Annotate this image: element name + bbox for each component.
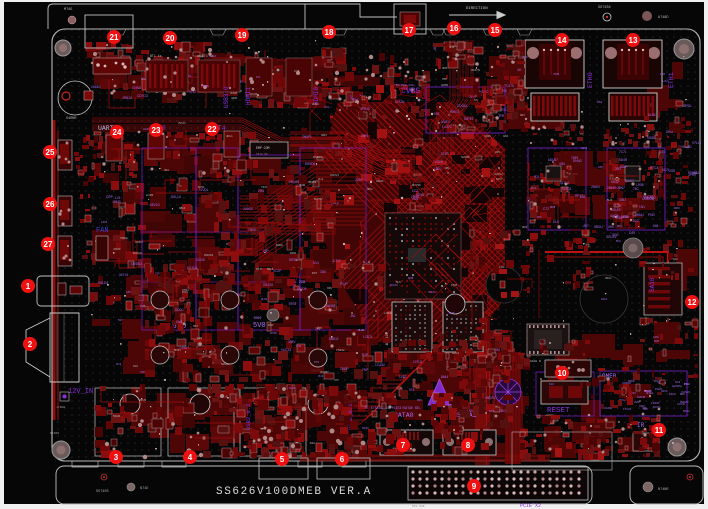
svg-text:R2U5: R2U5 — [139, 398, 147, 402]
svg-text:9742: 9742 — [189, 90, 196, 94]
svg-text:004: 004 — [608, 225, 614, 229]
svg-text:L7U: L7U — [615, 204, 622, 208]
svg-text:DRR6: DRR6 — [289, 258, 298, 262]
svg-text:L7U: L7U — [499, 265, 504, 269]
svg-text:R71: R71 — [531, 186, 537, 190]
svg-text:DU0C: DU0C — [175, 308, 184, 312]
svg-text:13: 13 — [629, 36, 638, 45]
svg-text:CDG6L: CDG6L — [457, 104, 468, 108]
svg-text:0978: 0978 — [289, 302, 296, 306]
svg-text:98L6: 98L6 — [179, 206, 186, 210]
svg-text:UCL: UCL — [324, 105, 330, 109]
svg-text:73N3: 73N3 — [248, 228, 256, 232]
svg-text:S5740S: S5740S — [96, 490, 109, 494]
svg-text:16x8 Gb: 16x8 Gb — [256, 152, 268, 156]
svg-text:4LN92: 4LN92 — [326, 304, 336, 308]
svg-text:958L: 958L — [203, 84, 210, 88]
svg-text:J864J: J864J — [635, 213, 644, 217]
svg-text:DL5: DL5 — [553, 220, 559, 224]
svg-text:7459: 7459 — [571, 156, 578, 160]
svg-text:BT1 4x: BT1 4x — [150, 54, 162, 58]
svg-text:UJ5: UJ5 — [659, 150, 665, 154]
svg-text:10: 10 — [558, 369, 567, 378]
svg-text:LJ3C5: LJ3C5 — [363, 335, 372, 339]
svg-text:685D2: 685D2 — [329, 337, 339, 341]
svg-text:67U: 67U — [314, 360, 319, 364]
svg-text:9PG: 9PG — [367, 187, 373, 191]
svg-text:2N5C: 2N5C — [312, 102, 319, 106]
svg-text:VUNVJ: VUNVJ — [681, 390, 691, 394]
svg-text:7RL8: 7RL8 — [428, 290, 435, 294]
svg-text:J49J3: J49J3 — [113, 247, 121, 251]
svg-text:270U: 270U — [182, 288, 189, 292]
svg-text:22: 22 — [208, 125, 217, 134]
svg-text:7229: 7229 — [412, 197, 419, 201]
svg-text:06UG8: 06UG8 — [289, 180, 299, 184]
svg-text:14: 14 — [558, 36, 567, 45]
svg-text:798DL: 798DL — [120, 236, 129, 240]
svg-text:R4CLR: R4CLR — [133, 251, 142, 255]
svg-text:PC476: PC476 — [504, 84, 514, 88]
svg-text:USB2_0.2: USB2_0.2 — [245, 404, 252, 430]
svg-text:RESET: RESET — [547, 407, 570, 415]
svg-text:J76J3: J76J3 — [112, 200, 121, 204]
svg-text:JPR: JPR — [498, 114, 505, 118]
svg-text:USB3.0: USB3.0 — [223, 86, 230, 108]
svg-text:19: 19 — [238, 31, 247, 40]
svg-text:76C: 76C — [633, 187, 640, 191]
svg-text:4VR: 4VR — [634, 400, 639, 404]
svg-text:9J3: 9J3 — [434, 112, 439, 116]
svg-text:R769: R769 — [270, 331, 277, 335]
svg-text:3U3: 3U3 — [318, 374, 324, 378]
svg-text:51DJ8: 51DJ8 — [637, 395, 646, 399]
svg-text:UL6C: UL6C — [648, 113, 657, 117]
svg-text:R612: R612 — [683, 409, 690, 413]
svg-text:5D5J: 5D5J — [174, 348, 181, 352]
svg-text:948: 948 — [653, 224, 659, 228]
svg-text:R90: R90 — [654, 339, 660, 343]
svg-text:R70L: R70L — [198, 185, 205, 189]
svg-text:9D0U: 9D0U — [594, 225, 603, 229]
svg-text:2U1: 2U1 — [318, 177, 324, 181]
svg-text:64LN: 64LN — [669, 392, 676, 396]
svg-text:38L: 38L — [445, 166, 450, 170]
svg-text:959: 959 — [417, 398, 422, 402]
svg-text:R8VD6: R8VD6 — [305, 162, 316, 166]
svg-text:23: 23 — [152, 126, 161, 135]
svg-text:9G67N: 9G67N — [471, 68, 480, 72]
svg-text:494: 494 — [164, 168, 169, 172]
svg-text:24713: 24713 — [119, 273, 128, 277]
svg-text:186: 186 — [598, 165, 603, 169]
svg-text:JP4UG: JP4UG — [360, 107, 371, 111]
svg-text:A5U PDN 42G: A5U PDN 42G — [394, 84, 414, 87]
svg-text:IR: IR — [637, 422, 645, 429]
svg-text:G6J: G6J — [503, 134, 509, 138]
svg-text:5: 5 — [280, 455, 285, 464]
svg-text:164: 164 — [197, 336, 202, 340]
svg-text:3D6: 3D6 — [320, 270, 326, 274]
svg-text:RR0: RR0 — [674, 206, 680, 210]
svg-text:1C43U: 1C43U — [375, 363, 386, 367]
svg-text:JD7: JD7 — [583, 224, 589, 228]
svg-text:7D11: 7D11 — [299, 183, 306, 187]
svg-text:NNU64: NNU64 — [204, 253, 214, 257]
svg-text:1C2: 1C2 — [412, 189, 418, 193]
svg-text:R7C3: R7C3 — [650, 166, 658, 170]
svg-text:5CL: 5CL — [616, 239, 622, 243]
svg-text:JU9G0: JU9G0 — [243, 207, 253, 211]
svg-text:PCIE X2: PCIE X2 — [520, 503, 541, 509]
svg-text:20: 20 — [166, 34, 175, 43]
svg-text:6: 6 — [340, 455, 345, 464]
svg-text:08RGV: 08RGV — [485, 396, 496, 400]
svg-text:VVCR: VVCR — [677, 402, 685, 406]
svg-text:CVBS: CVBS — [401, 87, 420, 96]
svg-text:UR4VJ: UR4VJ — [330, 173, 339, 177]
svg-text:EMP COM: EMP COM — [256, 146, 269, 150]
svg-text:477: 477 — [334, 378, 339, 382]
svg-text:G6V: G6V — [616, 216, 624, 220]
svg-text:7: 7 — [401, 441, 406, 450]
svg-text:043: 043 — [495, 348, 501, 352]
svg-text:V7LJ8: V7LJ8 — [692, 141, 701, 145]
svg-text:9R8: 9R8 — [550, 205, 556, 209]
svg-text:LCR5: LCR5 — [146, 193, 154, 197]
svg-text:29N: 29N — [258, 189, 265, 193]
svg-text:L415: L415 — [101, 220, 108, 224]
svg-text:P0JP: P0JP — [340, 282, 348, 286]
svg-text:JNL: JNL — [350, 314, 356, 318]
svg-text:28P1: 28P1 — [361, 134, 369, 138]
svg-text:N74NR: N74NR — [658, 488, 669, 492]
svg-text:23P: 23P — [263, 249, 269, 253]
svg-text:JLJ0: JLJ0 — [358, 328, 364, 332]
svg-text:4PR: 4PR — [442, 66, 447, 70]
svg-text:7C7L: 7C7L — [619, 150, 627, 154]
svg-text:64U: 64U — [310, 441, 315, 445]
svg-text:MTA5: MTA5 — [64, 8, 72, 12]
svg-text:9GLD4: 9GLD4 — [98, 281, 108, 285]
svg-text:2: 2 — [28, 340, 33, 349]
svg-text:7NP: 7NP — [362, 368, 368, 372]
svg-text:55V1D: 55V1D — [150, 203, 160, 207]
svg-text:67L: 67L — [256, 75, 261, 79]
svg-text:1: 1 — [26, 282, 31, 291]
svg-text:U587L: U587L — [441, 120, 451, 124]
svg-text:2G5: 2G5 — [669, 169, 675, 173]
svg-text:R670: R670 — [362, 426, 369, 430]
svg-text:628: 628 — [580, 195, 586, 199]
svg-text:4RL1: 4RL1 — [226, 134, 233, 138]
svg-text:26: 26 — [46, 200, 55, 209]
svg-text:9NJ2: 9NJ2 — [611, 180, 619, 184]
svg-text:DIRECTION: DIRECTION — [466, 7, 488, 11]
svg-text:PNG: PNG — [648, 213, 655, 217]
svg-text:ETH0: ETH0 — [587, 72, 594, 88]
svg-text:1448U: 1448U — [91, 85, 101, 89]
svg-text:522: 522 — [673, 257, 678, 261]
svg-text:J74DB: J74DB — [56, 406, 65, 409]
svg-text:8966: 8966 — [254, 316, 261, 320]
svg-text:52P49: 52P49 — [464, 117, 473, 121]
svg-text:9705: 9705 — [451, 283, 458, 287]
svg-text:4460: 4460 — [231, 96, 238, 100]
svg-text:C72: C72 — [543, 207, 549, 211]
svg-text:R2L: R2L — [534, 175, 540, 179]
svg-text:LJ6NR: LJ6NR — [384, 311, 393, 315]
svg-text:SA10: SA10 — [649, 277, 656, 292]
svg-text:323P: 323P — [355, 178, 362, 182]
svg-text:L8L0: L8L0 — [210, 54, 217, 58]
svg-text:12: 12 — [688, 298, 697, 307]
svg-text:C78: C78 — [294, 69, 300, 73]
svg-text:27: 27 — [44, 240, 53, 249]
svg-text:8GL1U: 8GL1U — [171, 195, 182, 199]
svg-text:7505: 7505 — [553, 72, 560, 76]
svg-text:17: 17 — [405, 26, 414, 35]
svg-text:0179: 0179 — [581, 146, 588, 150]
svg-text:537: 537 — [118, 318, 123, 322]
svg-text:CNND: CNND — [132, 86, 142, 90]
svg-text:21: 21 — [110, 33, 119, 42]
svg-text:5D4R: 5D4R — [619, 158, 628, 162]
svg-text:PKG RHE: PKG RHE — [412, 505, 425, 508]
svg-text:18: 18 — [325, 28, 334, 37]
svg-text:81V7: 81V7 — [496, 177, 503, 181]
svg-text:A748D: A748D — [658, 16, 669, 20]
svg-text:601: 601 — [537, 215, 542, 219]
svg-text:RDV7: RDV7 — [625, 179, 634, 183]
svg-text:JRNJU: JRNJU — [122, 96, 133, 100]
svg-text:VC2P: VC2P — [273, 269, 281, 273]
svg-text:3GL69: 3GL69 — [611, 208, 621, 212]
svg-text:LR0: LR0 — [660, 72, 666, 76]
svg-text:306J: 306J — [619, 198, 626, 202]
svg-text:FAN: FAN — [96, 227, 109, 235]
svg-text:966: 966 — [617, 224, 622, 228]
svg-text:7C1: 7C1 — [299, 280, 305, 284]
svg-text:2J005: 2J005 — [196, 258, 205, 262]
svg-text:7L4U: 7L4U — [661, 79, 668, 83]
svg-text:1R5GU: 1R5GU — [131, 262, 142, 266]
svg-text:4CR: 4CR — [522, 55, 528, 59]
svg-text:0U5: 0U5 — [449, 45, 455, 49]
svg-text:DRN: DRN — [290, 251, 296, 255]
svg-text:3: 3 — [114, 453, 119, 462]
svg-text:JL717: JL717 — [332, 259, 341, 263]
svg-text:874: 874 — [684, 382, 689, 386]
svg-text:VUC41: VUC41 — [281, 348, 292, 352]
svg-text:GV0PG: GV0PG — [672, 384, 682, 388]
svg-text:PCIE/SATA SEL PCIE2/SATA0 SEL: PCIE/SATA SEL PCIE2/SATA0 SEL — [365, 406, 421, 410]
svg-text:9: 9 — [472, 482, 477, 491]
svg-text:CD7CG: CD7CG — [137, 94, 149, 98]
svg-text:SS626V100DMEB VER.A: SS626V100DMEB VER.A — [216, 486, 372, 498]
svg-text:L85: L85 — [126, 290, 131, 294]
svg-text:RU4U: RU4U — [390, 283, 398, 287]
svg-text:N74D: N74D — [140, 487, 148, 491]
svg-text:2R4: 2R4 — [522, 225, 528, 229]
svg-text:974: 974 — [409, 388, 415, 392]
svg-text:107L5: 107L5 — [413, 360, 422, 364]
svg-text:935: 935 — [327, 286, 332, 290]
svg-text:PG20: PG20 — [655, 387, 663, 391]
svg-text:38C53: 38C53 — [308, 180, 317, 184]
svg-text:DVJ: DVJ — [313, 261, 319, 265]
svg-text:16: 16 — [450, 24, 459, 33]
svg-text:P49: P49 — [623, 215, 629, 219]
svg-text:GR60: GR60 — [376, 179, 384, 183]
svg-text:5V0: 5V0 — [253, 322, 266, 330]
svg-text:GVJ: GVJ — [176, 320, 183, 324]
svg-text:798: 798 — [140, 370, 145, 374]
svg-text:R54: R54 — [597, 100, 603, 104]
svg-text:ETH1: ETH1 — [668, 72, 675, 88]
svg-text:01U: 01U — [133, 364, 138, 368]
svg-text:S4RNR: S4RNR — [66, 117, 77, 121]
svg-text:003: 003 — [520, 113, 525, 117]
svg-text:017L4: 017L4 — [560, 181, 569, 185]
svg-text:9L63: 9L63 — [261, 297, 268, 301]
svg-text:61U: 61U — [549, 382, 554, 386]
svg-text:CRP: CRP — [106, 195, 113, 199]
svg-text:025: 025 — [495, 150, 500, 154]
svg-text:R7P: R7P — [362, 353, 368, 357]
svg-text:97J0: 97J0 — [256, 267, 263, 271]
svg-text:35PDL: 35PDL — [682, 104, 692, 108]
svg-text:RU45: RU45 — [250, 92, 258, 96]
svg-text:9G8D: 9G8D — [647, 136, 656, 140]
svg-text:C39: C39 — [296, 344, 302, 348]
svg-text:7347: 7347 — [261, 185, 268, 189]
svg-text:43N: 43N — [559, 162, 566, 166]
svg-text:8: 8 — [466, 441, 471, 450]
svg-text:795: 795 — [642, 406, 647, 410]
svg-text:24: 24 — [113, 128, 122, 137]
svg-text:53UR: 53UR — [113, 414, 120, 418]
svg-text:5918: 5918 — [267, 267, 274, 271]
svg-text:9N9G: 9N9G — [646, 391, 653, 395]
svg-text:25: 25 — [46, 148, 55, 157]
svg-text:6R8: 6R8 — [449, 311, 455, 315]
svg-text:R2C1: R2C1 — [452, 351, 460, 355]
svg-text:1V53: 1V53 — [399, 375, 407, 379]
svg-text:7RUC: 7RUC — [178, 121, 186, 125]
svg-text:D54C4: D54C4 — [313, 155, 322, 159]
svg-text:828P: 828P — [620, 165, 627, 169]
svg-text:DJ9: DJ9 — [629, 231, 635, 235]
svg-text:77R4V: 77R4V — [336, 348, 345, 352]
svg-text:12V_IN: 12V_IN — [68, 388, 93, 396]
svg-text:GD3: GD3 — [321, 133, 327, 137]
svg-text:4: 4 — [188, 453, 193, 462]
svg-text:D9DL: D9DL — [276, 243, 284, 247]
svg-text:N2P26: N2P26 — [461, 155, 470, 159]
svg-text:758: 758 — [442, 77, 447, 81]
svg-text:3R3: 3R3 — [615, 167, 621, 171]
svg-text:02L6: 02L6 — [601, 297, 608, 301]
svg-text:29199: 29199 — [607, 186, 617, 190]
svg-text:136NP: 136NP — [651, 401, 660, 405]
svg-text:064: 064 — [197, 54, 202, 58]
svg-text:215L: 215L — [653, 335, 660, 339]
svg-text:5U4: 5U4 — [607, 198, 613, 202]
svg-text:8644: 8644 — [441, 375, 448, 379]
svg-text:J8N7: J8N7 — [617, 186, 625, 190]
svg-text:GA08 W: GA08 W — [530, 360, 541, 363]
svg-text:G79D7: G79D7 — [179, 346, 189, 350]
svg-text:322: 322 — [633, 219, 639, 223]
svg-text:R6P: R6P — [268, 323, 274, 327]
svg-text:R07: R07 — [312, 271, 318, 275]
svg-text:SGT4S6: SGT4S6 — [598, 6, 611, 10]
svg-text:2P2: 2P2 — [317, 326, 322, 330]
svg-text:R73: R73 — [489, 409, 495, 413]
svg-text:JPR9: JPR9 — [688, 173, 696, 177]
svg-text:L008: L008 — [636, 183, 644, 187]
svg-text:LP8R: LP8R — [441, 83, 448, 87]
svg-text:15: 15 — [491, 26, 500, 35]
svg-text:R08: R08 — [408, 276, 414, 280]
svg-text:UUDG8: UUDG8 — [642, 197, 654, 201]
svg-text:GN0P: GN0P — [340, 367, 349, 371]
svg-text:11: 11 — [655, 426, 664, 435]
svg-text:93C: 93C — [193, 324, 198, 328]
svg-text:N74NR: N74NR — [50, 432, 59, 435]
svg-text:519D1: 519D1 — [562, 187, 572, 191]
svg-text:2N6N: 2N6N — [591, 185, 600, 189]
svg-text:2C3: 2C3 — [116, 362, 122, 366]
svg-text:35U1: 35U1 — [605, 276, 612, 280]
svg-text:LLR8: LLR8 — [289, 386, 296, 390]
svg-text:00U4G: 00U4G — [263, 283, 274, 287]
svg-text:1N1: 1N1 — [639, 205, 645, 209]
svg-text:17V44: 17V44 — [623, 407, 632, 411]
